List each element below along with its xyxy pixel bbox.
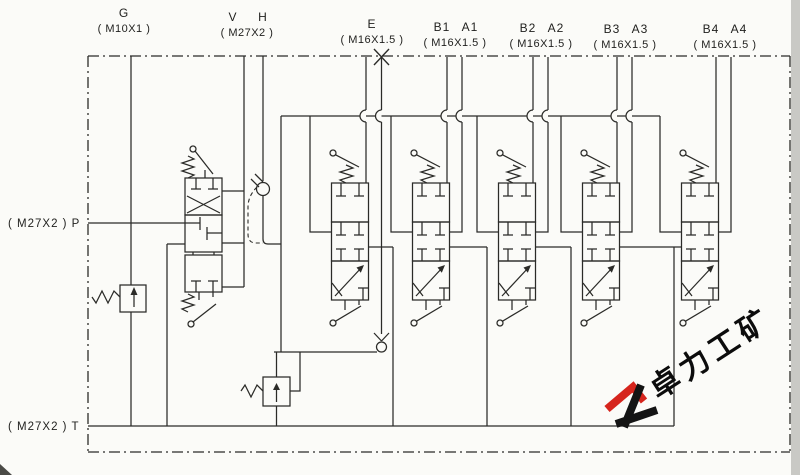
work-valve-b3 bbox=[581, 150, 620, 326]
port-label-a2: A2 bbox=[548, 21, 565, 35]
port-label-v: V bbox=[228, 10, 237, 24]
work-valve-b1 bbox=[411, 150, 450, 326]
scan-edge-strip bbox=[791, 0, 800, 475]
port-thread-vh: ( M27X2 ) bbox=[221, 27, 274, 39]
port-label-a3: A3 bbox=[632, 22, 649, 36]
check-valve-e bbox=[374, 333, 389, 352]
port-label-p: ( M27X2 ) P bbox=[8, 218, 80, 230]
port-thread-b4a4: ( M16X1.5 ) bbox=[694, 39, 757, 51]
port-label-b1: B1 bbox=[434, 20, 451, 34]
watermark: 卓力工矿 bbox=[607, 301, 779, 427]
scan-corner-mark bbox=[0, 464, 12, 475]
port-label-g: G bbox=[119, 6, 129, 20]
port-thread-b1a1: ( M16X1.5 ) bbox=[424, 37, 487, 49]
main-gallery-lines bbox=[88, 56, 682, 426]
port-label-b3: B3 bbox=[604, 22, 621, 36]
scanned-schematic-page: G ( M10X1 ) V H ( M27X2 ) E ( M16X1.5 ) … bbox=[0, 0, 800, 475]
work-valve-b4 bbox=[680, 150, 719, 326]
port-thread-b2a2: ( M16X1.5 ) bbox=[510, 38, 573, 50]
v-port-line bbox=[222, 56, 244, 287]
secondary-relief-valve bbox=[241, 352, 300, 426]
port-label-h: H bbox=[258, 10, 268, 24]
check-valve-h bbox=[251, 174, 270, 196]
port-label-a1: A1 bbox=[462, 20, 479, 34]
port-label-b2: B2 bbox=[520, 21, 537, 35]
port-label-e: E bbox=[367, 17, 376, 31]
watermark-text: 卓力工矿 bbox=[643, 301, 779, 406]
main-relief-valve bbox=[92, 285, 146, 312]
port-label-a4: A4 bbox=[731, 22, 748, 36]
port-label-b4: B4 bbox=[703, 22, 720, 36]
work-valve-b2 bbox=[497, 150, 536, 326]
port-label-t: ( M27X2 ) T bbox=[8, 421, 80, 433]
port-thread-g: ( M10X1 ) bbox=[98, 23, 151, 35]
hydraulic-schematic: G ( M10X1 ) V H ( M27X2 ) E ( M16X1.5 ) … bbox=[0, 0, 800, 475]
top-port-labels: G ( M10X1 ) V H ( M27X2 ) E ( M16X1.5 ) … bbox=[98, 6, 757, 51]
port-thread-b3a3: ( M16X1.5 ) bbox=[594, 39, 657, 51]
port-thread-e: ( M16X1.5 ) bbox=[341, 34, 404, 46]
left-port-labels: ( M27X2 ) P ( M27X2 ) T bbox=[8, 218, 80, 433]
work-valve-e bbox=[330, 150, 369, 326]
feed-bus-line bbox=[281, 116, 682, 232]
inlet-control-valve bbox=[182, 146, 222, 327]
